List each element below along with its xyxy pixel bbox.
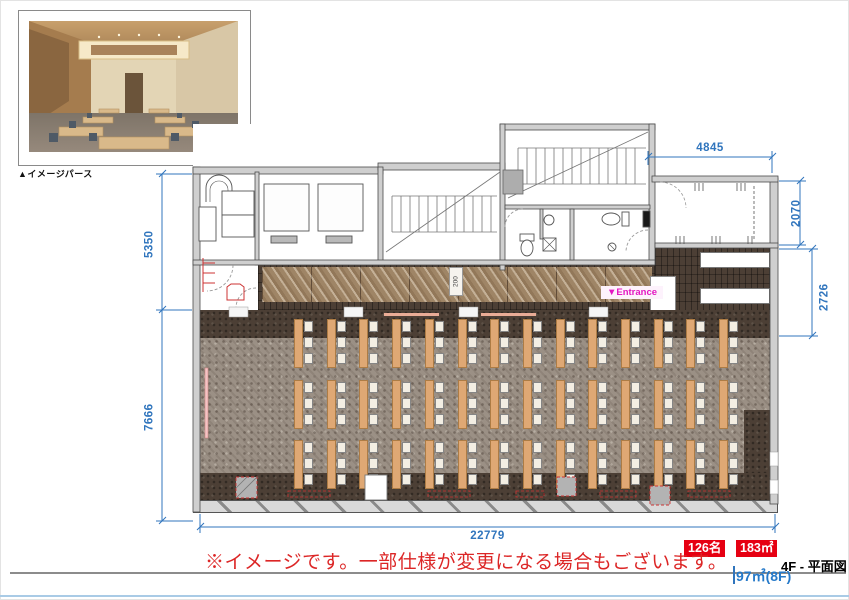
dim-line-7666 (156, 310, 193, 521)
pantry-door-arc (207, 265, 233, 291)
north-wall-right (652, 176, 778, 182)
utility-box (643, 211, 650, 227)
pillar-gray-1 (557, 477, 576, 496)
corridor-width-label: 200 (449, 267, 463, 296)
equipment-unit-1 (264, 184, 309, 231)
storage-rooms (264, 184, 363, 243)
dim-line-4845 (648, 151, 772, 173)
stair-block-top-wall (378, 163, 505, 170)
toilet-bowl-icon (521, 240, 533, 256)
door-gap-3 (459, 307, 478, 317)
stair-tower-left-wall (500, 124, 505, 270)
washbasin-icon (544, 215, 554, 225)
pillars (236, 475, 730, 505)
pantry-cabinet-bottom (222, 215, 254, 237)
stairs-left (386, 172, 500, 252)
corridor-north-wall (193, 260, 655, 265)
pillar-white (365, 475, 387, 500)
whiteboard (205, 368, 208, 438)
threshold-1 (271, 236, 297, 243)
hall-features (205, 307, 778, 494)
pillar-gray-2 (650, 486, 670, 505)
toilet-door-arc (505, 209, 523, 227)
terrace-room (660, 182, 754, 244)
red-shelf-icon (203, 258, 215, 292)
vestibule-door-arc (236, 288, 256, 308)
terrace-door-arc (660, 182, 686, 208)
east-door-gap-1 (770, 452, 778, 466)
dim-left-upper: 5350 (142, 205, 157, 283)
toilet2-tank (622, 212, 629, 226)
equipment-unit-2 (318, 184, 363, 231)
dim-line-2726 (779, 249, 818, 336)
stair-tower-top-wall (500, 124, 655, 130)
door-gap-2 (344, 307, 363, 317)
dim-line-5350 (156, 174, 192, 310)
salmon-strip-2 (481, 313, 536, 316)
toilet2-bowl-icon (602, 213, 620, 225)
east-door-gap-2 (770, 480, 778, 494)
storage-divider-wall (378, 167, 383, 265)
pantry-counter (199, 207, 216, 241)
dim-top-width: 4845 (648, 142, 772, 154)
toilet-north-wall (505, 205, 650, 209)
elevator-shaft (503, 170, 523, 194)
toilet-door-arc2 (626, 230, 648, 252)
dim-right-upper: 2070 (789, 182, 804, 244)
door-gap-1 (229, 307, 248, 317)
dim-left-lower: 7666 (142, 375, 157, 459)
toilet-stall-wall (540, 209, 543, 239)
dim-right-lower: 2726 (817, 255, 832, 339)
entrance-label: ▼Entrance (601, 286, 663, 299)
salmon-strip-1 (384, 313, 439, 316)
toilet-divider-wall (570, 209, 574, 260)
pantry-cabinet-top (222, 191, 254, 215)
red-stand-icon (227, 284, 244, 300)
plan-linework (0, 0, 849, 600)
dim-bottom-width: 22779 (325, 530, 650, 542)
north-wall-left (193, 167, 383, 174)
threshold-2 (326, 236, 352, 243)
toilet-fixtures (505, 209, 650, 256)
stairs-upper (508, 132, 648, 198)
pantry-divider-wall (255, 172, 259, 265)
door-gap-4 (589, 307, 608, 317)
terrace-room-south-wall (655, 243, 778, 248)
floor-plan-sheet: ▲イメージパース (0, 0, 849, 600)
